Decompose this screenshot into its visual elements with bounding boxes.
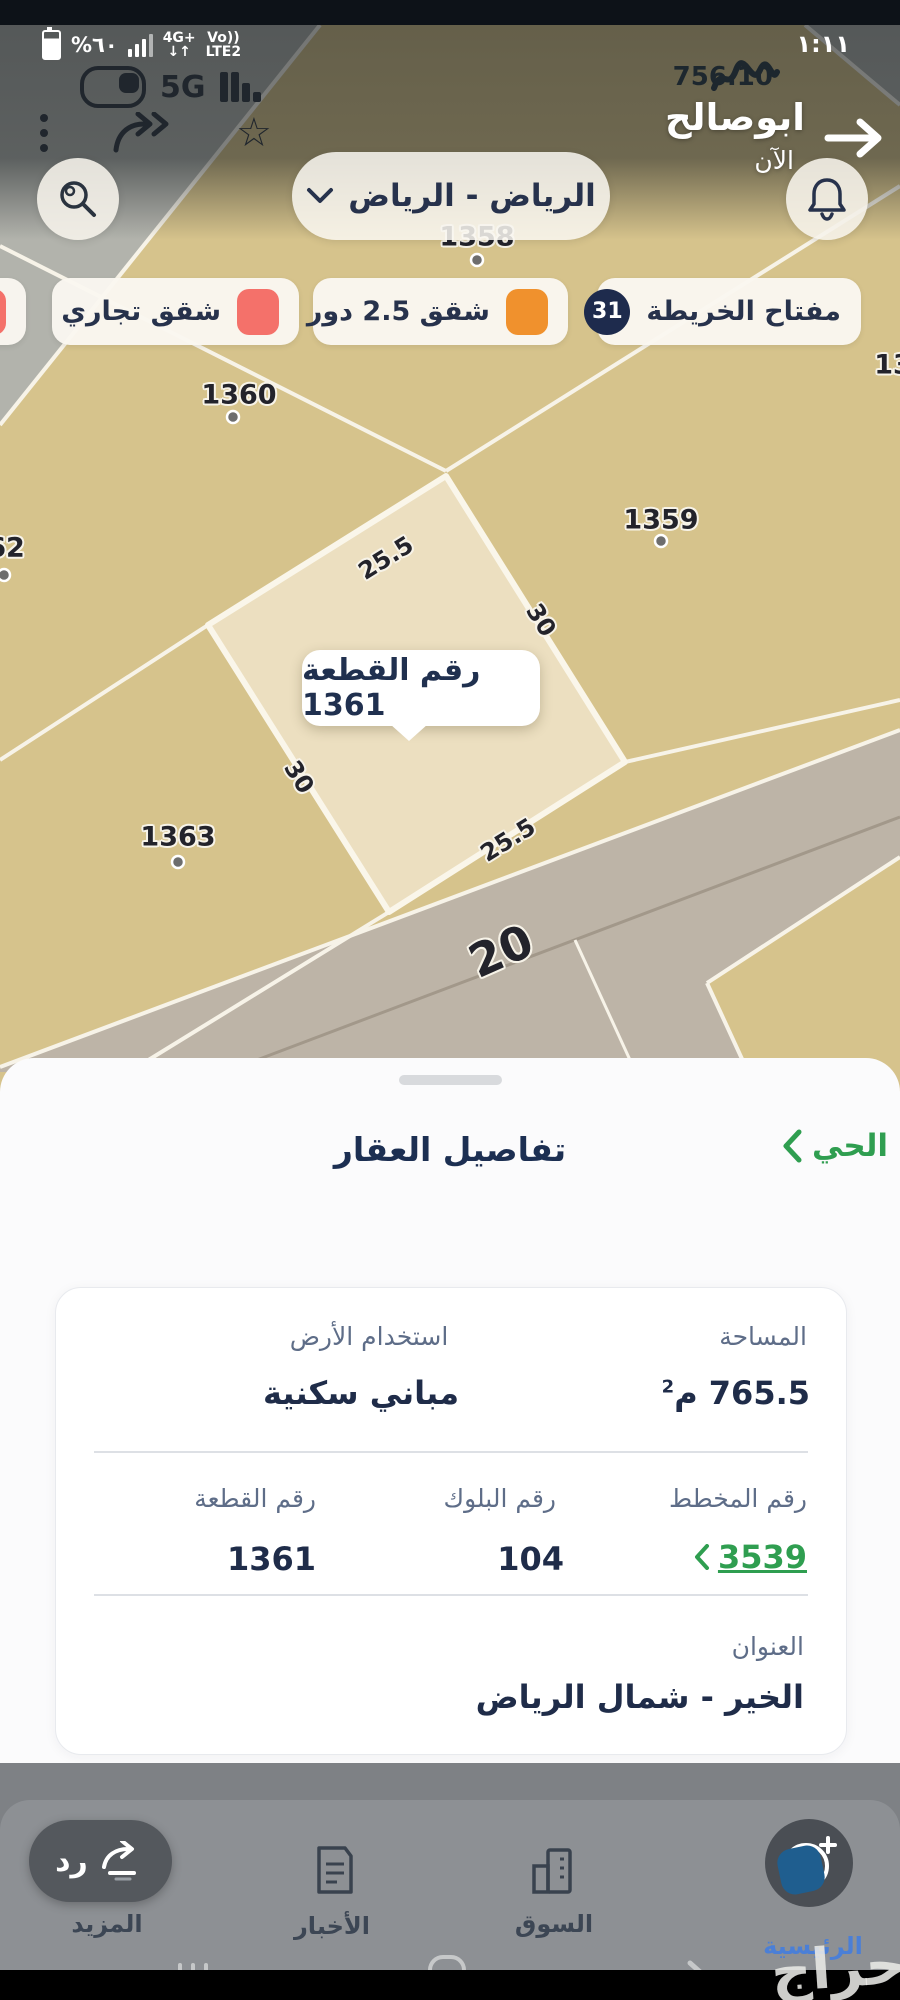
network-4g-indicator: 4G+↓↑ bbox=[163, 31, 196, 59]
parcel-number-62: 62 bbox=[0, 533, 25, 564]
signal-bars-dark-icon bbox=[220, 72, 261, 102]
plan-number-label: رقم المخطط bbox=[669, 1484, 807, 1513]
status-row-carrier: %٦٠ 4G+↓↑ Vo))LTE2 bbox=[42, 30, 241, 60]
divider bbox=[94, 1594, 808, 1596]
bell-icon bbox=[806, 176, 848, 222]
reply-button[interactable]: رد bbox=[29, 1820, 172, 1902]
signal-bars-icon bbox=[128, 34, 153, 57]
scribble-mark bbox=[710, 58, 780, 100]
red-swatch-partial bbox=[0, 289, 6, 335]
battery-icon bbox=[42, 30, 61, 60]
kebab-menu-icon[interactable] bbox=[40, 114, 48, 152]
share-forward-icon[interactable] bbox=[110, 112, 174, 154]
plan-number-value: 3539 bbox=[718, 1538, 807, 1576]
address-label: العنوان bbox=[732, 1632, 804, 1661]
district-label: الحي bbox=[812, 1128, 888, 1164]
detail-card: المساحة 765.5 م2 استخدام الأرض مباني سكن… bbox=[55, 1287, 847, 1755]
news-document-icon bbox=[307, 1844, 357, 1898]
chevron-left-icon bbox=[694, 1544, 710, 1570]
top-black-bar bbox=[0, 0, 900, 25]
land-use-label: استخدام الأرض bbox=[290, 1322, 449, 1351]
status-row-5g: 5G bbox=[80, 66, 261, 108]
plan-number-link[interactable]: 3539 bbox=[694, 1538, 807, 1576]
network-5g-label: 5G bbox=[160, 70, 206, 105]
bookmark-star-icon[interactable]: ☆ bbox=[236, 113, 272, 153]
legend-chip-partial[interactable] bbox=[0, 278, 26, 345]
reply-forward-icon bbox=[100, 1841, 146, 1881]
divider bbox=[94, 1451, 808, 1453]
reply-label: رد bbox=[55, 1844, 88, 1879]
orange-swatch bbox=[506, 289, 548, 335]
bottom-nav-bar: الرئيسية السوق الأخبار bbox=[0, 1800, 900, 1970]
search-icon bbox=[56, 177, 100, 221]
land-use-value: مباني سكنية bbox=[263, 1374, 459, 1412]
browser-action-row: ☆ bbox=[40, 112, 272, 154]
chip-25-label: شقق 2.5 دور bbox=[307, 296, 490, 327]
drag-handle[interactable] bbox=[399, 1075, 502, 1085]
block-number-label: رقم البلوك bbox=[443, 1484, 556, 1513]
battery-saver-icon bbox=[80, 66, 146, 108]
buildings-icon bbox=[526, 1844, 582, 1896]
sheet-title: تفاصيل العقار bbox=[0, 1130, 900, 1169]
red-swatch bbox=[237, 289, 279, 335]
volte-indicator: Vo))LTE2 bbox=[206, 31, 241, 59]
tooltip-pointer bbox=[390, 724, 428, 741]
parcel-number-1359: 1359 bbox=[623, 505, 698, 536]
map-legend: مفتاح الخريطة 31 شقق 2.5 دور شقق تجاري bbox=[0, 278, 900, 345]
parcel-number-label: رقم القطعة bbox=[194, 1484, 316, 1513]
notification-sender: ابوصالح bbox=[665, 96, 805, 139]
chevron-left-icon bbox=[782, 1129, 802, 1163]
tooltip-text: رقم القطعة 1361 bbox=[302, 653, 540, 723]
nav-home-icon-wrap[interactable] bbox=[765, 1819, 853, 1907]
forward-arrow-icon[interactable] bbox=[824, 116, 886, 160]
battery-percent: %٦٠ bbox=[71, 33, 118, 57]
parcel-number-1360: 1360 bbox=[201, 380, 276, 411]
haraj-watermark: حراج bbox=[769, 1931, 900, 2000]
legend-chip-commercial[interactable]: شقق تجاري bbox=[52, 278, 299, 345]
map-key-label: مفتاح الخريطة bbox=[646, 296, 841, 327]
bottom-black-bar bbox=[0, 1970, 900, 2000]
notifications-button[interactable] bbox=[786, 158, 868, 240]
block-number-value: 104 bbox=[497, 1540, 564, 1578]
chevron-down-icon bbox=[306, 187, 334, 205]
parcel-number-13: 13 bbox=[874, 350, 900, 381]
legend-map-key-chip[interactable]: مفتاح الخريطة 31 bbox=[597, 278, 861, 345]
bottom-nav-zone: الرئيسية السوق الأخبار bbox=[0, 1763, 900, 1970]
chip-commercial-label: شقق تجاري bbox=[61, 296, 221, 327]
map-key-count-badge: 31 bbox=[584, 289, 630, 335]
parcel-number-1363: 1363 bbox=[140, 822, 215, 853]
app-screen: 1358 1360 1359 1363 62 13 25.5 30 30 25.… bbox=[0, 0, 900, 2000]
clock: ١:١١ bbox=[796, 30, 850, 58]
area-value: 765.5 م2 bbox=[662, 1374, 810, 1412]
property-details-sheet: تفاصيل العقار الحي المساحة 765.5 م2 استخ… bbox=[0, 1058, 900, 1770]
district-link[interactable]: الحي bbox=[782, 1128, 888, 1164]
nav-item-market[interactable]: السوق bbox=[484, 1844, 624, 1938]
location-selector[interactable]: الرياض - الرياض bbox=[292, 152, 610, 240]
address-value: الخير - شمال الرياض bbox=[476, 1678, 804, 1716]
notification-time: الآن bbox=[754, 146, 794, 175]
area-label: المساحة bbox=[719, 1322, 807, 1351]
search-button[interactable] bbox=[37, 158, 119, 240]
parcel-number-value: 1361 bbox=[227, 1540, 316, 1578]
nav-item-news[interactable]: الأخبار bbox=[262, 1844, 402, 1940]
parcel-tooltip: رقم القطعة 1361 bbox=[302, 650, 540, 726]
location-label: الرياض - الرياض bbox=[348, 178, 596, 214]
legend-chip-25-floors[interactable]: شقق 2.5 دور bbox=[313, 278, 568, 345]
